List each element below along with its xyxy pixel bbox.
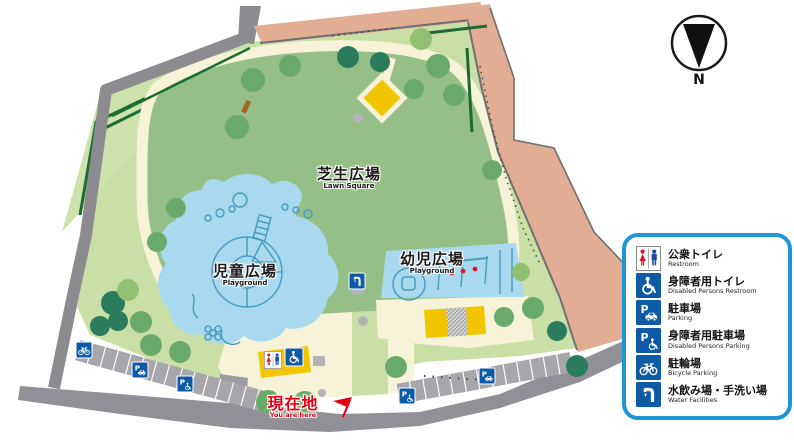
legend-item-disabled-parking: 身障者用駐車場 Disabled Persons Parking (636, 328, 782, 353)
label-toddler-playground-en: Playground (400, 267, 464, 275)
disabled-restroom-icon (636, 273, 661, 298)
map-bicycle-parking-icon (76, 342, 92, 358)
legend-item-parking: 駐車場 Parking (636, 300, 782, 325)
legend-item-disabled-restroom: 身障者用トイレ Disabled Persons Restroom (636, 273, 782, 298)
label-toddler-playground-ja: 幼児広場 (400, 252, 464, 267)
label-lawn-square-ja: 芝生広場 (317, 167, 381, 182)
label-children-playground-en: Playground (213, 279, 277, 287)
legend-label-ja: 身障者用駐車場 (668, 330, 750, 342)
legend-item-water-facilities: 水飲み場・手洗い場 Water Facilities (636, 382, 782, 407)
legend-label-en: Parking (668, 315, 701, 322)
label-lawn-square-en: Lawn Square (317, 182, 381, 190)
park-guide-map: P P (0, 0, 794, 441)
restroom-icon (636, 246, 661, 271)
label-children-playground: 児童広場 Playground (213, 264, 277, 287)
label-lawn-square: 芝生広場 Lawn Square (317, 167, 381, 190)
north-compass: N (672, 16, 726, 88)
map-disabled-parking-icon (177, 376, 193, 392)
map-disabled-parking-icon-right (399, 388, 415, 404)
label-toddler-playground: 幼児広場 Playground (400, 252, 464, 275)
label-you-are-here: 現在地 You are here (267, 396, 318, 420)
legend-item-bicycle-parking: 駐輪場 Bicycle Parking (636, 355, 782, 380)
disabled-parking-icon (636, 328, 661, 353)
toddler-building (424, 306, 486, 338)
legend-label-ja: 駐輪場 (668, 358, 717, 370)
legend-label-en: Water Facilities (668, 397, 767, 404)
legend-label-en: Restroom (668, 261, 723, 268)
parking-icon (636, 300, 661, 325)
legend-label-en: Disabled Persons Parking (668, 343, 750, 350)
compass-north-label: N (693, 72, 705, 88)
legend-panel: 公衆トイレ Restroom 身障者用トイレ Disabled Persons … (622, 233, 792, 420)
label-children-playground-ja: 児童広場 (213, 264, 277, 279)
legend-item-restroom: 公衆トイレ Restroom (636, 246, 782, 271)
map-parking-icon (132, 362, 148, 378)
bicycle-parking-icon (636, 355, 661, 380)
legend-label-en: Bicycle Parking (668, 370, 717, 377)
legend-label-en: Disabled Persons Restroom (668, 288, 757, 295)
map-disabled-restroom-icon (285, 348, 303, 366)
water-facilities-icon (636, 382, 661, 407)
map-restroom-icon (264, 351, 281, 368)
map-parking-icon-right (479, 368, 495, 384)
label-you-are-here-en: You are here (267, 412, 318, 420)
label-you-are-here-ja: 現在地 (267, 396, 318, 412)
